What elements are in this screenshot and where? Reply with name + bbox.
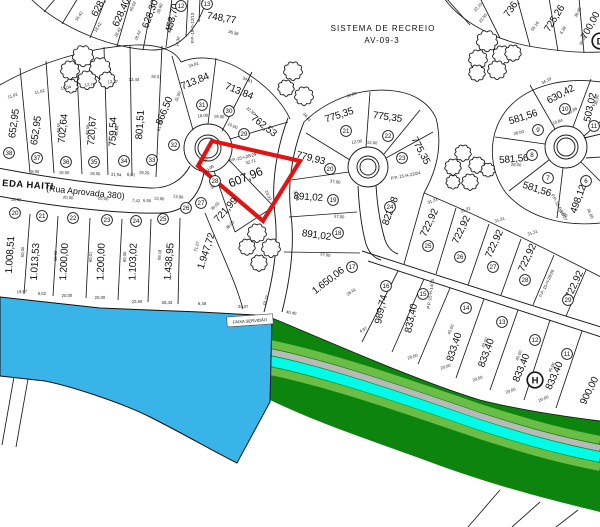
lot-number-text: 21: [39, 213, 46, 220]
dimension-label: 20,00: [505, 386, 517, 395]
lot-number-badge: 18: [333, 228, 344, 239]
recreation-area-label-line1: SISTEMA DE RECREIO: [331, 24, 436, 33]
lot-number-badge: 15: [418, 289, 429, 300]
dimension-label: 13,62: [11, 197, 22, 203]
lot-number-text: 17: [349, 264, 356, 271]
lot-area-label: 722,92: [484, 228, 507, 260]
lot-number-text: 32: [171, 142, 178, 149]
lot-area-label: 1.200,00: [58, 242, 71, 280]
dimension-label: 34,81: [188, 60, 200, 68]
lot-area-label: 1.008,51: [4, 235, 18, 274]
lot-number-badge: 37: [32, 153, 43, 164]
dimension-label: 60,00: [20, 246, 26, 257]
lot-number-text: 22: [385, 133, 392, 140]
block-letter-marker: D: [592, 33, 600, 49]
lot-area-label: 630,42: [545, 83, 577, 107]
dimension-label: 6,38: [198, 301, 207, 306]
lot-area-label: 1.650,06: [310, 265, 347, 297]
lot-area-label: 748,77: [206, 11, 237, 27]
lot-number-badge: 38: [4, 148, 15, 159]
lot-number-badge: 28: [520, 275, 531, 286]
dimension-label: 18,00: [59, 170, 70, 176]
dimension-label: 18,00: [29, 169, 40, 175]
dimension-label: 12,27: [108, 79, 119, 85]
dimension-label: 26,43: [162, 300, 173, 305]
lot-area-label: 652,95: [29, 115, 44, 146]
lot-number-text: 37: [34, 155, 41, 162]
dimension-label: 18,42: [133, 29, 142, 41]
lot-area-label: 775,35: [324, 106, 356, 126]
dimension-label: 18,01: [151, 73, 163, 79]
lot-area-label: 720,67: [86, 115, 99, 146]
lot-number-badge: 23: [397, 153, 408, 164]
tree-icon: [455, 145, 472, 161]
dimension-label: 22,55: [478, 12, 489, 24]
lot-number-badge: 19: [328, 195, 339, 206]
dimension-label: 12,00: [367, 139, 379, 145]
dimension-label: 20,00: [98, 196, 109, 202]
lot-number-text: 7: [546, 175, 550, 182]
dimension-label: 20,00: [538, 394, 550, 403]
lot-number-text: 20: [12, 210, 19, 217]
lot-number-text: 36: [63, 159, 70, 166]
lot-number-badge: 6: [581, 176, 592, 187]
lot-number-text: 10: [562, 106, 569, 113]
lot-area-label: 736,: [502, 0, 522, 19]
lot-area-label: 713,84: [223, 81, 255, 102]
lot-area-label: 702,64: [57, 113, 71, 144]
lot-area-label: 721,99: [212, 195, 240, 225]
lot-area-label: 652,95: [7, 108, 22, 139]
lot-area-label: 628,30: [140, 0, 161, 30]
dimension-label: 71,27: [193, 240, 201, 252]
lot-area-label: 866,50: [154, 95, 175, 127]
green-strip-base: [270, 318, 600, 512]
dimension-label: 12,44: [129, 77, 140, 82]
lot-area-label: 775,35: [372, 110, 403, 125]
tree-icon: [481, 163, 495, 177]
lot-number-badge: 22: [68, 213, 79, 224]
lot-number-badge: 12: [530, 335, 541, 346]
lot-number-badge: 7: [543, 173, 554, 184]
lot-number-badge: 8: [527, 150, 538, 161]
culdesac-east-island-inner: [557, 138, 575, 156]
lot-number-badge: 9: [533, 125, 544, 136]
lot-number-badge: 35: [89, 157, 100, 168]
dimension-label: 28,61: [345, 286, 357, 296]
lot-number-text: 28: [522, 277, 529, 284]
lot-number-badge: 20: [325, 164, 336, 175]
lot-area-label: 1.947,72: [196, 231, 218, 271]
lot-number-badge: 28: [210, 176, 221, 187]
dimension-label: 28,00: [513, 129, 525, 136]
lot-number-badge: 25: [423, 241, 434, 252]
lot-area-label: 833,40: [403, 302, 420, 334]
street-middle-stub-west-edge: [358, 186, 381, 260]
lot-number-badge: 36: [61, 157, 72, 168]
dimension-label: 12,74: [84, 81, 96, 87]
lot-number-text: 13: [499, 319, 506, 326]
tree-icon: [505, 45, 522, 61]
lot-number-text: 12: [178, 3, 185, 10]
lot-area-label: 989,74: [373, 293, 390, 325]
dimension-label: 22,60: [132, 299, 143, 304]
lot-number-badge: 27: [196, 198, 207, 209]
lot-number-text: 16: [383, 283, 390, 290]
lot-area-label: 722,92: [419, 207, 442, 239]
lot-number-text: 13: [204, 1, 211, 8]
dimension-label: 11,02: [7, 91, 19, 99]
lot-number-text: 38: [6, 150, 13, 157]
block-letter-marker: H: [527, 372, 543, 388]
lot-number-badge: 13: [202, 0, 213, 9]
tree-icon: [284, 62, 303, 81]
reference-code-label: P.P.-15-G-12/13: [190, 12, 195, 43]
dimension-label: 37,00: [334, 214, 346, 220]
lot-number-badge: 13: [497, 317, 508, 328]
lot-number-text: 23: [399, 155, 406, 162]
lot-number-text: 24: [387, 204, 394, 211]
lot-number-text: 29: [241, 131, 248, 138]
lot-area-label: 833,40: [476, 337, 497, 369]
tree-icon: [61, 61, 80, 80]
dimension-label: 36,00: [573, 6, 583, 18]
lot-number-badge: 11: [562, 349, 573, 360]
dimension-label: 7,42: [132, 198, 141, 204]
lot-number-badge: 20: [10, 208, 21, 219]
lot-number-badge: 21: [341, 126, 352, 137]
tree-icon: [446, 175, 460, 189]
lot-number-text: 26: [183, 205, 190, 212]
lot-number-text: 8: [530, 152, 534, 159]
lot-area-label: 833,40: [445, 331, 465, 363]
dimension-label: 60,00: [122, 251, 127, 262]
dimension-label: 18,42: [93, 21, 103, 33]
lot-number-text: 27: [198, 200, 205, 207]
tree-icon: [295, 87, 314, 106]
dimension-label: 36,81: [302, 111, 313, 123]
dimension-label: 55,16: [530, 20, 541, 32]
culdesac-east-outer: [545, 126, 587, 168]
lot-number-badge: 23: [102, 215, 113, 226]
lot-area-label: 628,40: [111, 0, 133, 29]
dimension-label: 31,31: [494, 215, 506, 223]
lot-area-label: 1.103,02: [127, 242, 139, 280]
lot-area-label: 581,56: [508, 108, 540, 128]
lot-number-text: 21: [343, 128, 350, 135]
dimension-label: 6,50: [143, 198, 152, 204]
lot-number-text: 9: [536, 127, 540, 134]
lot-number-badge: 24: [385, 202, 396, 213]
tree-icon: [239, 239, 256, 255]
dimension-label: 60,00: [53, 250, 58, 261]
dimension-label: 20,00: [95, 295, 106, 300]
lot-number-text: 29: [565, 297, 572, 304]
lot-number-text: 27: [490, 264, 497, 271]
lot-number-text: 11: [564, 351, 571, 358]
green-strip: [270, 318, 600, 512]
lot-number-badge: 32: [169, 140, 180, 151]
street-east-stub-edges: [584, 134, 600, 158]
dimension-label: 19,00: [214, 114, 225, 120]
lot-number-text: 12: [532, 337, 539, 344]
dimension-label: 10,77: [261, 294, 270, 306]
dimension-label: 0,52: [38, 291, 47, 296]
dimension-label: 31,31: [427, 196, 439, 205]
culdesac-middle-island-inner: [360, 159, 376, 175]
lot-area-label: 775,35: [408, 135, 432, 167]
lot-area-label: 1.200,00: [95, 242, 107, 280]
lot-number-text: 19: [330, 197, 337, 204]
dimension-label: 13,00: [154, 196, 166, 202]
dimension-label: 40,40: [286, 309, 298, 316]
lot-number-text: 23: [104, 217, 111, 224]
dimension-label: 60,01: [88, 251, 93, 262]
dimension-label: 16,42: [74, 10, 84, 22]
lot-number-badge: 29: [563, 295, 574, 306]
tree-icon: [251, 255, 268, 271]
dimension-label: 35,00: [586, 208, 595, 220]
lot-number-badge: 26: [455, 252, 466, 263]
lot-area-label: 722,92: [451, 214, 474, 246]
block-letter-text: D: [597, 36, 600, 47]
lot-number-badge: 12: [176, 1, 187, 12]
tree-icon: [278, 80, 295, 96]
dimension-label: 36,38: [228, 29, 240, 37]
dimension-label: 31,31: [527, 228, 539, 236]
lot-area-label: 722,92: [517, 242, 540, 274]
lot-area-label: 498,12: [568, 183, 589, 215]
lot-number-text: 28: [212, 178, 219, 185]
dimension-label: 20,00: [440, 362, 452, 370]
lot-number-text: 6: [584, 178, 588, 185]
block-letter-text: H: [532, 375, 539, 386]
dimension-label: 37,00: [320, 251, 332, 258]
lot-number-badge: 14: [461, 303, 472, 314]
lot-number-text: 34: [121, 158, 128, 165]
lot-area-label: 713,84: [179, 71, 211, 92]
dimension-label: 34,07: [238, 304, 249, 310]
lot-number-badge: 16: [381, 281, 392, 292]
dimension-label: 11,02: [34, 88, 46, 95]
dimension-label: 20,00: [407, 352, 419, 360]
tree-icon: [488, 61, 507, 80]
dimension-label: 20,00: [63, 195, 74, 201]
lot-area-label: 900,00: [578, 375, 600, 407]
tree-icon: [445, 159, 462, 175]
tree-icon: [262, 239, 281, 258]
lot-number-badge: 26: [181, 203, 192, 214]
culdesac-middle-outer: [348, 147, 388, 187]
dimension-label: 18,00: [197, 112, 209, 118]
lot-number-badge: 25: [158, 214, 169, 225]
lot-area-label: 833,40: [544, 360, 566, 392]
plat-map-canvas: SISTEMA DE RECREIO AV-09-3 EDA HAITI (Ru…: [0, 0, 600, 527]
reference-code-label: P.P.-15-H-23/24: [391, 170, 422, 181]
street-diagonal-upper-edge: [362, 251, 600, 327]
lot-number-badge: 29: [239, 129, 250, 140]
lot-number-text: 22: [70, 215, 77, 222]
lot-number-text: 31: [199, 102, 206, 109]
lot-number-badge: 27: [488, 262, 499, 273]
lot-number-badge: 10: [560, 104, 571, 115]
culdesac-east-island-outer: [554, 135, 578, 159]
dimension-label: 18,29: [139, 169, 151, 175]
dimension-label: 19,97: [17, 289, 28, 295]
lot-number-badge: 11: [589, 121, 600, 132]
dimension-label: 10,84: [552, 117, 564, 125]
lot-number-badge: 21: [37, 211, 48, 222]
tree-icon: [469, 65, 486, 81]
lot-area-label: 759,54: [107, 116, 119, 146]
dimension-label: 30,89: [346, 90, 358, 99]
lot-area-label: 1.013,53: [29, 242, 43, 281]
dimension-label: 10,00: [227, 121, 239, 130]
lot-number-badge: 24: [131, 216, 142, 227]
lot-number-text: 15: [420, 291, 427, 298]
lot-number-text: 25: [425, 243, 432, 250]
lot-number-text: 20: [327, 166, 334, 173]
dimension-label: 14,30: [174, 35, 181, 47]
lot-number-badge: 31: [197, 100, 208, 111]
lot-number-text: 30: [226, 108, 233, 115]
lot-number-text: 24: [133, 218, 140, 225]
lot-number-text: 25: [160, 216, 167, 223]
dimension-label: 13,00: [173, 193, 185, 199]
street-name-suffix-label: (Rua Aprovada 380): [46, 183, 125, 201]
lot-area-label: 891,02: [301, 228, 332, 243]
lot-number-text: 18: [335, 230, 342, 237]
lot-number-text: 14: [463, 305, 470, 312]
lot-number-badge: 30: [224, 106, 235, 117]
dimension-label: 6,01: [127, 172, 136, 178]
dimension-label: 12,00: [351, 138, 363, 145]
recreation-area-label-line2: AV-09-3: [364, 36, 399, 45]
dimension-label: 69,18: [157, 249, 163, 261]
lot-area-label: 1.438,95: [162, 242, 176, 281]
dimension-label: 23,32: [264, 190, 273, 202]
plat-map-viewport: SISTEMA DE RECREIO AV-09-3 EDA HAITI (Ru…: [0, 0, 600, 527]
lot-number-badge: 33: [147, 155, 158, 166]
dimension-label: 20,00: [472, 374, 484, 383]
lot-number-text: 11: [591, 123, 598, 130]
dimension-label: 20,00: [62, 293, 73, 298]
tree-icon: [476, 31, 497, 52]
dimension-label: 18,00: [90, 171, 101, 177]
dimension-label: 8,38: [558, 25, 567, 35]
dimension-label: 31,31: [460, 205, 472, 214]
dimension-label: 31,94: [111, 172, 122, 178]
lot-area-label: 891,02: [293, 191, 324, 204]
lot-number-text: 33: [149, 157, 156, 164]
lot-number-badge: 17: [347, 262, 358, 273]
tree-icon: [462, 174, 479, 190]
lot-number-badge: 22: [383, 131, 394, 142]
dimension-label: 37,00: [330, 178, 342, 185]
lot-number-text: 26: [457, 254, 464, 261]
lot-area-label: 581,56: [499, 153, 530, 167]
lot-number-badge: 34: [119, 156, 130, 167]
lot-number-text: 35: [91, 159, 98, 166]
lot-area-label: 628,: [90, 0, 108, 19]
lot-area-label: 801,51: [134, 109, 147, 140]
lot-area-label: 607,96: [226, 164, 265, 190]
